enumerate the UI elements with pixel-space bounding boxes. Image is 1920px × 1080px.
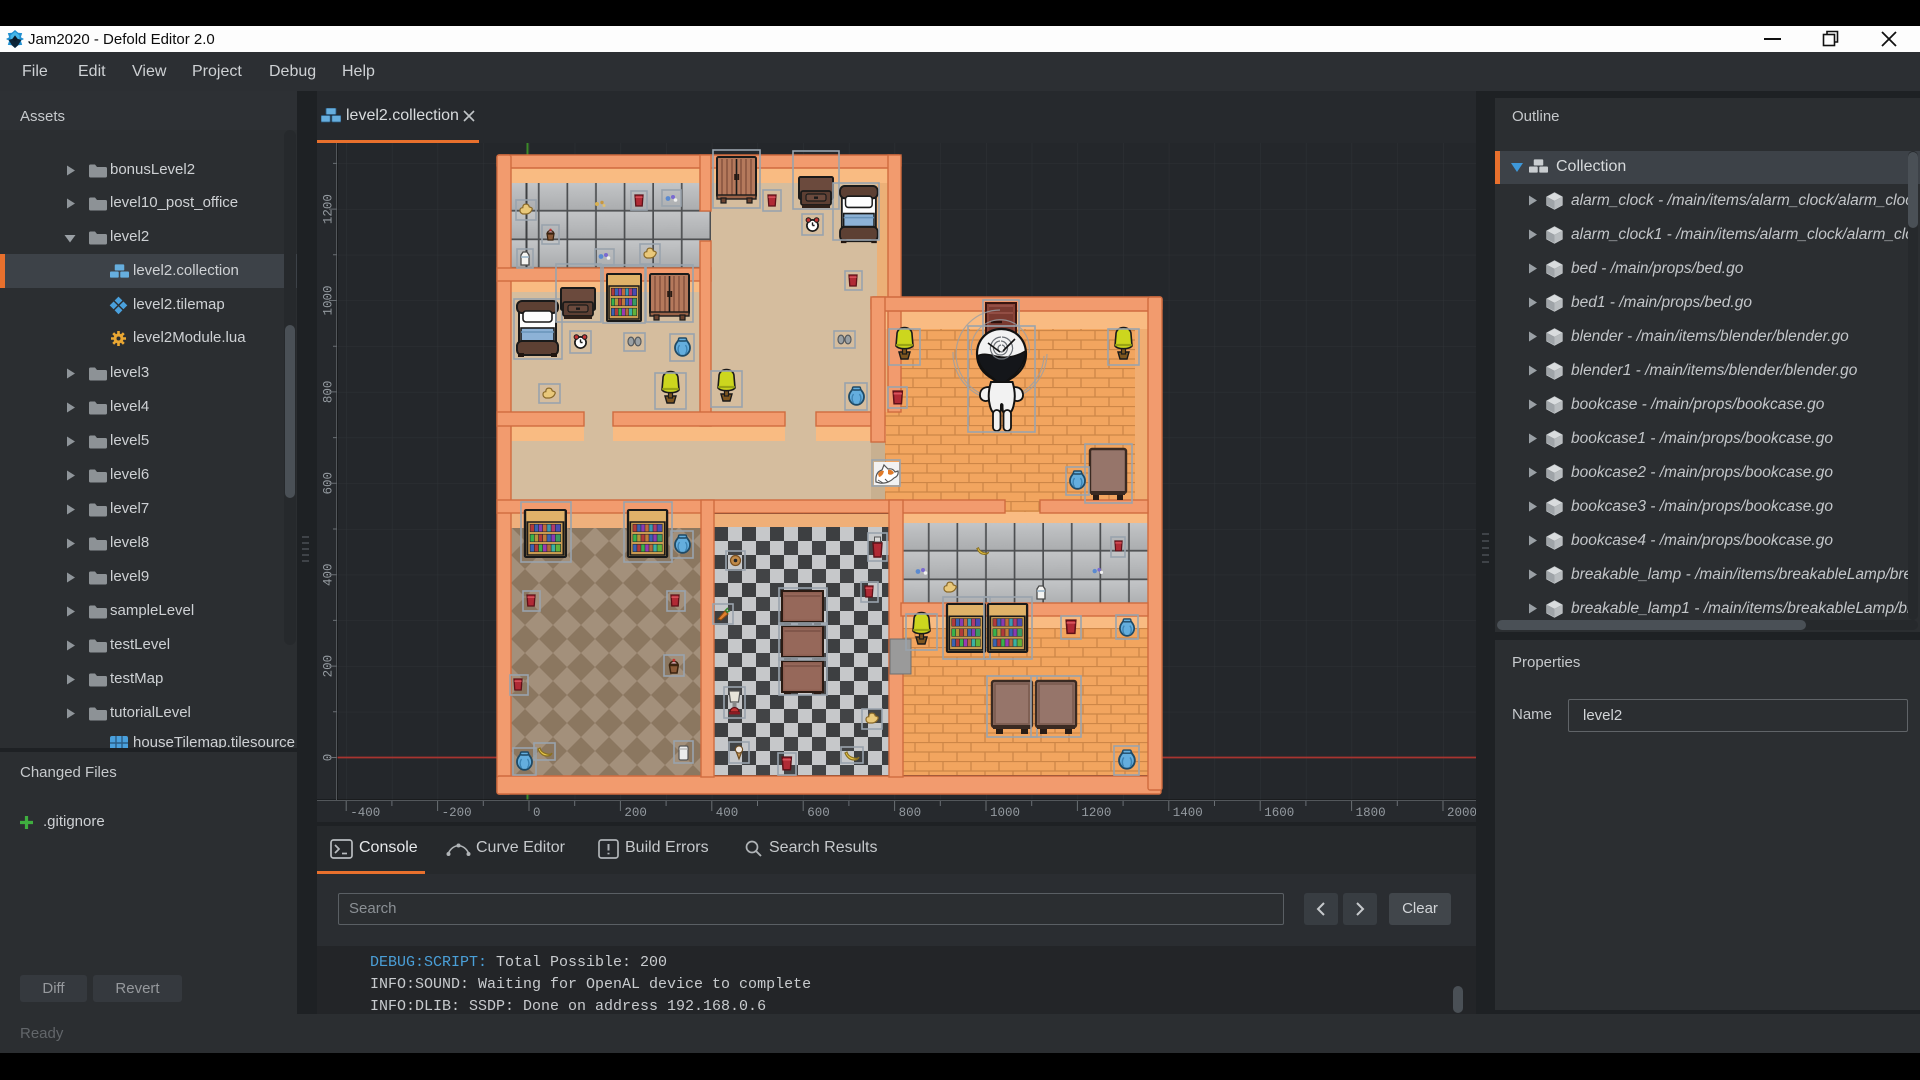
svg-text:600: 600	[807, 806, 830, 820]
svg-text:200: 200	[624, 806, 647, 820]
svg-text:-200: -200	[442, 806, 472, 820]
svg-text:1600: 1600	[1264, 806, 1294, 820]
svg-text:2000: 2000	[1447, 806, 1476, 820]
svg-text:1400: 1400	[1173, 806, 1203, 820]
svg-text:400: 400	[716, 806, 739, 820]
svg-text:1800: 1800	[1356, 806, 1386, 820]
svg-text:0: 0	[533, 806, 541, 820]
svg-text:-400: -400	[350, 806, 380, 820]
svg-text:1000: 1000	[990, 806, 1020, 820]
svg-text:800: 800	[899, 806, 922, 820]
svg-text:1200: 1200	[1081, 806, 1111, 820]
